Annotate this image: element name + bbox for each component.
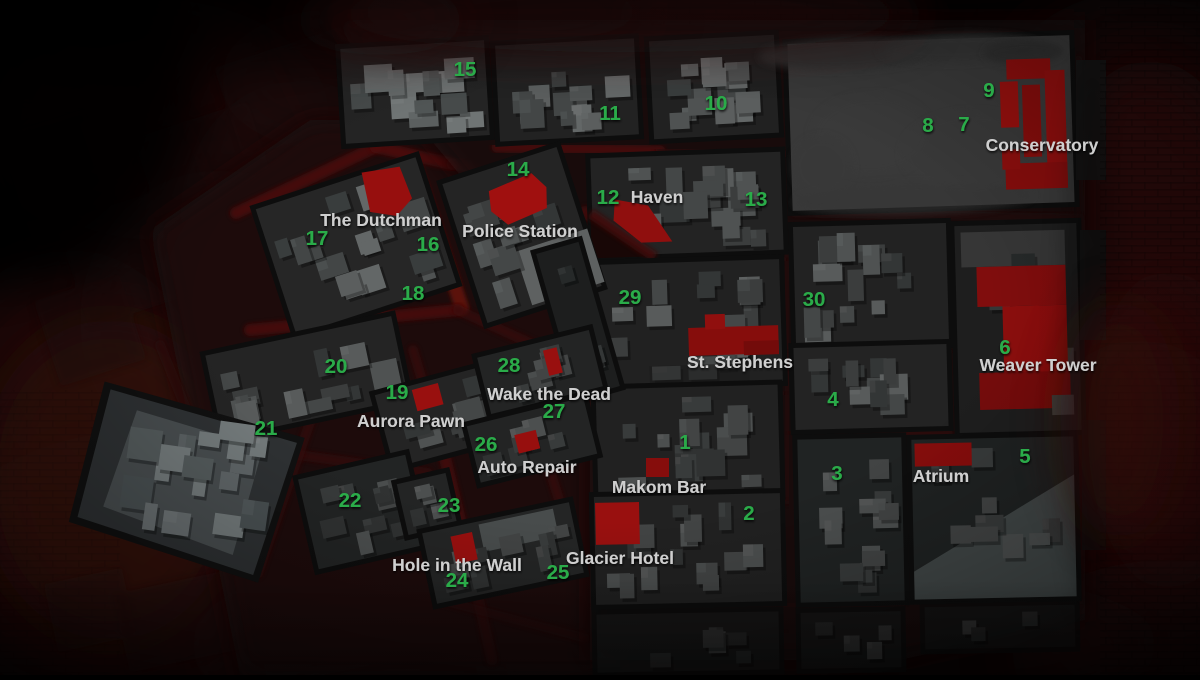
svg-text:Glacier Hotel: Glacier Hotel (566, 548, 674, 568)
svg-text:Conservatory: Conservatory (986, 135, 1099, 155)
svg-text:21: 21 (255, 417, 278, 440)
svg-text:11: 11 (599, 102, 621, 125)
svg-text:15: 15 (454, 58, 477, 81)
svg-text:30: 30 (803, 288, 826, 311)
svg-text:5: 5 (1019, 445, 1030, 468)
svg-text:18: 18 (402, 282, 425, 305)
svg-text:Auto Repair: Auto Repair (477, 457, 576, 477)
svg-text:Police Station: Police Station (462, 221, 578, 241)
svg-text:Wake the Dead: Wake the Dead (487, 384, 611, 404)
svg-text:29: 29 (619, 286, 642, 309)
svg-text:The Dutchman: The Dutchman (320, 210, 442, 230)
svg-text:20: 20 (325, 355, 348, 378)
svg-text:4: 4 (827, 388, 839, 411)
svg-text:Haven: Haven (631, 187, 684, 207)
svg-text:3: 3 (831, 462, 842, 485)
svg-text:Aurora Pawn: Aurora Pawn (357, 411, 465, 431)
svg-text:23: 23 (438, 494, 461, 517)
svg-text:Weaver Tower: Weaver Tower (979, 355, 1096, 375)
svg-text:Atrium: Atrium (913, 466, 969, 486)
svg-text:7: 7 (958, 113, 969, 136)
svg-text:26: 26 (475, 433, 498, 456)
svg-text:19: 19 (386, 381, 409, 404)
svg-text:17: 17 (306, 227, 329, 250)
svg-text:16: 16 (417, 233, 440, 256)
svg-text:22: 22 (339, 489, 362, 512)
svg-text:8: 8 (922, 114, 933, 137)
svg-text:9: 9 (983, 79, 994, 102)
svg-text:Hole in the Wall: Hole in the Wall (392, 555, 522, 575)
svg-text:14: 14 (507, 158, 530, 181)
svg-text:Makom Bar: Makom Bar (612, 477, 707, 497)
svg-text:St. Stephens: St. Stephens (687, 352, 793, 372)
svg-text:10: 10 (705, 92, 728, 115)
svg-text:13: 13 (745, 188, 768, 211)
svg-text:2: 2 (743, 502, 754, 525)
svg-text:1: 1 (679, 431, 690, 454)
svg-text:28: 28 (498, 354, 521, 377)
svg-text:12: 12 (597, 186, 620, 209)
